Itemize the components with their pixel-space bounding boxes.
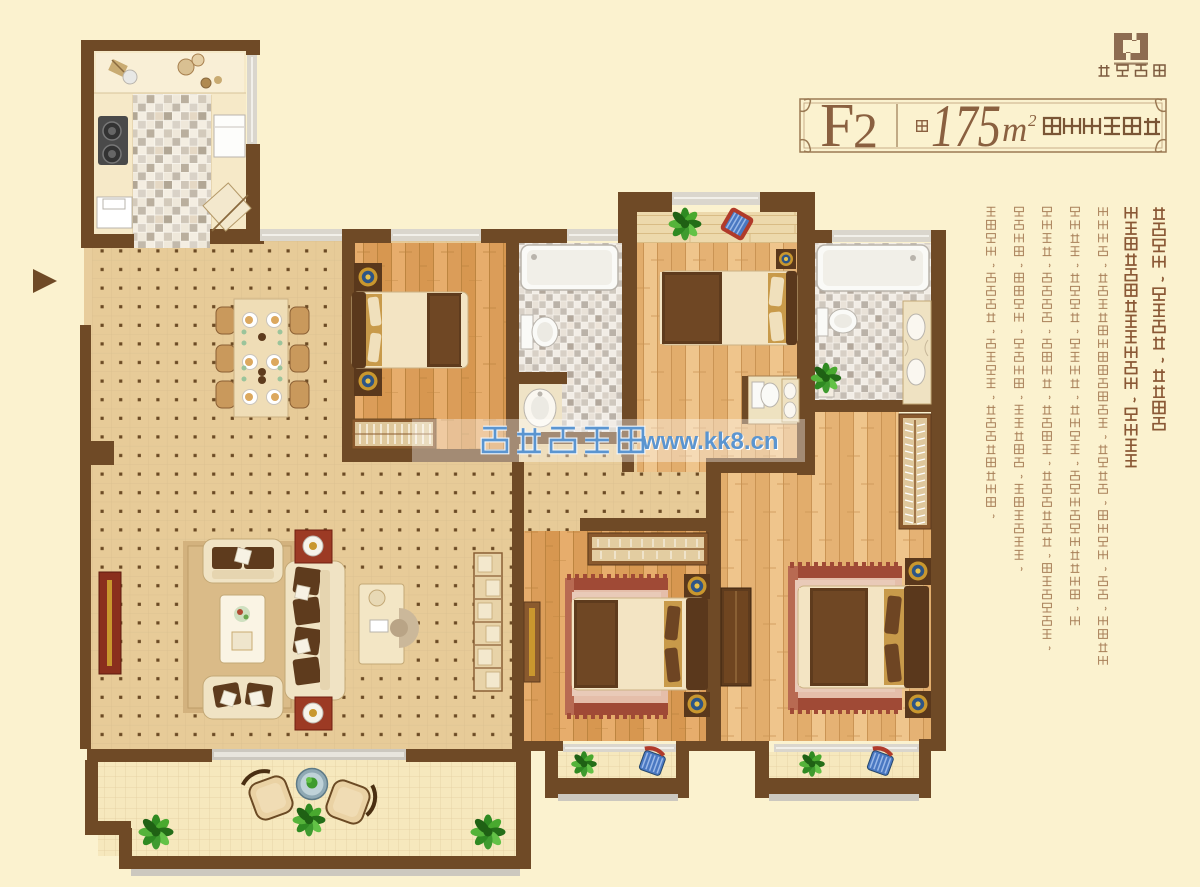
svg-text:2: 2 <box>1028 111 1037 130</box>
svg-text:F: F <box>820 92 854 160</box>
svg-text:m: m <box>1002 110 1027 149</box>
svg-text:175: 175 <box>931 93 1001 159</box>
svg-text:www.kk8.cn: www.kk8.cn <box>641 428 779 455</box>
svg-text:2: 2 <box>853 102 878 158</box>
